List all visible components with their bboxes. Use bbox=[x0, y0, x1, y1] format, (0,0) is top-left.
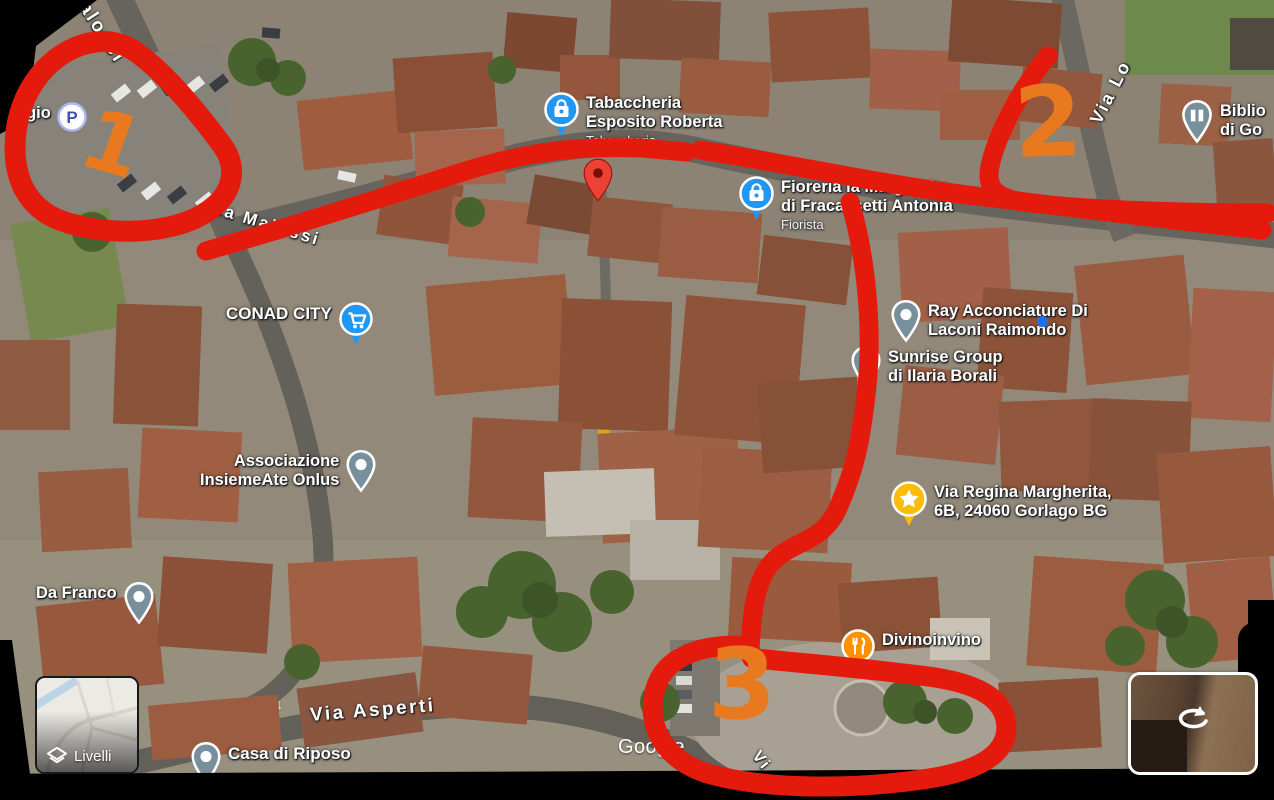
poi-biblioteca-name2: di Go bbox=[1220, 121, 1266, 140]
poi-biblioteca-name1: Biblio bbox=[1220, 102, 1266, 121]
parking-icon[interactable]: P bbox=[57, 102, 87, 132]
shopping-bag-icon[interactable] bbox=[738, 176, 775, 221]
google-watermark: Google bbox=[618, 736, 685, 759]
poi-da-franco-label: Da Franco bbox=[36, 584, 117, 603]
poi-divinoinvino-label: Divinoinvino bbox=[882, 631, 981, 650]
restaurant-icon[interactable] bbox=[840, 629, 876, 673]
poi-tabaccheria-category: Tabaccheria bbox=[586, 133, 723, 149]
black-crop-bottom bbox=[0, 768, 1274, 800]
poi-conad-city[interactable]: CONAD CITY bbox=[226, 302, 374, 346]
poi-fioreria[interactable]: Fioreria la Margherita di Fracassetti An… bbox=[738, 176, 953, 233]
layers-label: Livelli bbox=[74, 748, 112, 765]
shopping-cart-icon[interactable] bbox=[338, 302, 374, 346]
poi-casa-di-riposo-label: Casa di Riposo bbox=[228, 744, 351, 764]
poi-fioreria-name2: di Fracassetti Antonia bbox=[781, 197, 953, 216]
poi-ray-acconciature[interactable]: Ray Acconciature Di Laconi Raimondo bbox=[890, 300, 1088, 343]
poi-tabaccheria-name1: Tabaccheria bbox=[586, 94, 723, 113]
poi-associazione-name1: Associazione bbox=[200, 452, 339, 471]
gray-pin-icon[interactable] bbox=[123, 582, 155, 625]
poi-associazione[interactable]: Associazione InsiemeAte Onlus bbox=[200, 450, 377, 493]
rotate-view-icon bbox=[1173, 705, 1213, 735]
maps-screenshot: alossi Via Malossi Via Lo Via Asperti Vi… bbox=[0, 0, 1274, 800]
layers-button[interactable]: Livelli bbox=[35, 676, 139, 774]
library-book-icon[interactable] bbox=[1180, 100, 1214, 144]
poi-associazione-name2: InsiemeAte Onlus bbox=[200, 471, 339, 490]
poi-saved-address[interactable]: Via Regina Margherita, 6B, 24060 Gorlago… bbox=[890, 481, 1112, 527]
one-way-arrow-icon: ↓ bbox=[276, 696, 284, 713]
poi-divinoinvino[interactable]: Divinoinvino bbox=[840, 629, 981, 673]
svg-text:P: P bbox=[66, 108, 77, 127]
poi-fioreria-name1: Fioreria la Margherita bbox=[781, 178, 953, 197]
map-pin-marker[interactable] bbox=[583, 158, 613, 202]
poi-ray-name2: Laconi Raimondo bbox=[928, 321, 1088, 340]
poi-biblioteca[interactable]: Biblio di Go bbox=[1180, 100, 1266, 144]
saved-star-icon[interactable] bbox=[890, 481, 928, 527]
poi-da-franco[interactable]: Da Franco bbox=[36, 582, 155, 625]
poi-ray-name1: Ray Acconciature Di bbox=[928, 302, 1088, 321]
poi-saved-line1: Via Regina Margherita, bbox=[934, 483, 1112, 502]
gray-pin-icon[interactable] bbox=[345, 450, 377, 493]
poi-tabaccheria[interactable]: Tabaccheria Esposito Roberta Tabaccheria bbox=[543, 92, 723, 149]
shopping-bag-icon[interactable] bbox=[543, 92, 580, 137]
map-canvas[interactable]: alossi Via Malossi Via Lo Via Asperti Vi… bbox=[0, 0, 1274, 800]
poi-saved-line2: 6B, 24060 Gorlago BG bbox=[934, 502, 1112, 521]
poi-sunrise-name1: Sunrise Group bbox=[888, 348, 1003, 367]
gray-pin-icon[interactable] bbox=[850, 346, 882, 389]
poi-fioreria-category: Fiorista bbox=[781, 217, 953, 233]
poi-conad-label: CONAD CITY bbox=[226, 304, 332, 324]
poi-sunrise-name2: di Ilaria Borali bbox=[888, 367, 1003, 386]
poi-sunrise-group[interactable]: Sunrise Group di Ilaria Borali bbox=[850, 346, 1003, 389]
poi-tabaccheria-name2: Esposito Roberta bbox=[586, 113, 723, 132]
street-view-thumbnail[interactable] bbox=[1128, 672, 1258, 775]
gray-pin-icon[interactable] bbox=[890, 300, 922, 343]
layers-icon bbox=[47, 747, 67, 765]
blue-dot-marker bbox=[1037, 316, 1048, 327]
